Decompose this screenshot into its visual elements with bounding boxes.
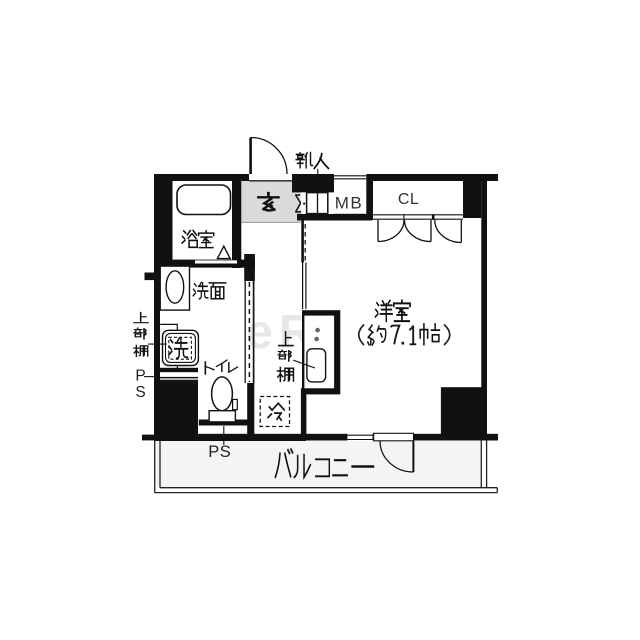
svg-text:MB: MB	[335, 193, 364, 212]
svg-text:P: P	[135, 368, 145, 385]
svg-text:PS: PS	[208, 443, 231, 461]
svg-text:S: S	[135, 384, 145, 401]
svg-text:CL: CL	[398, 191, 419, 208]
